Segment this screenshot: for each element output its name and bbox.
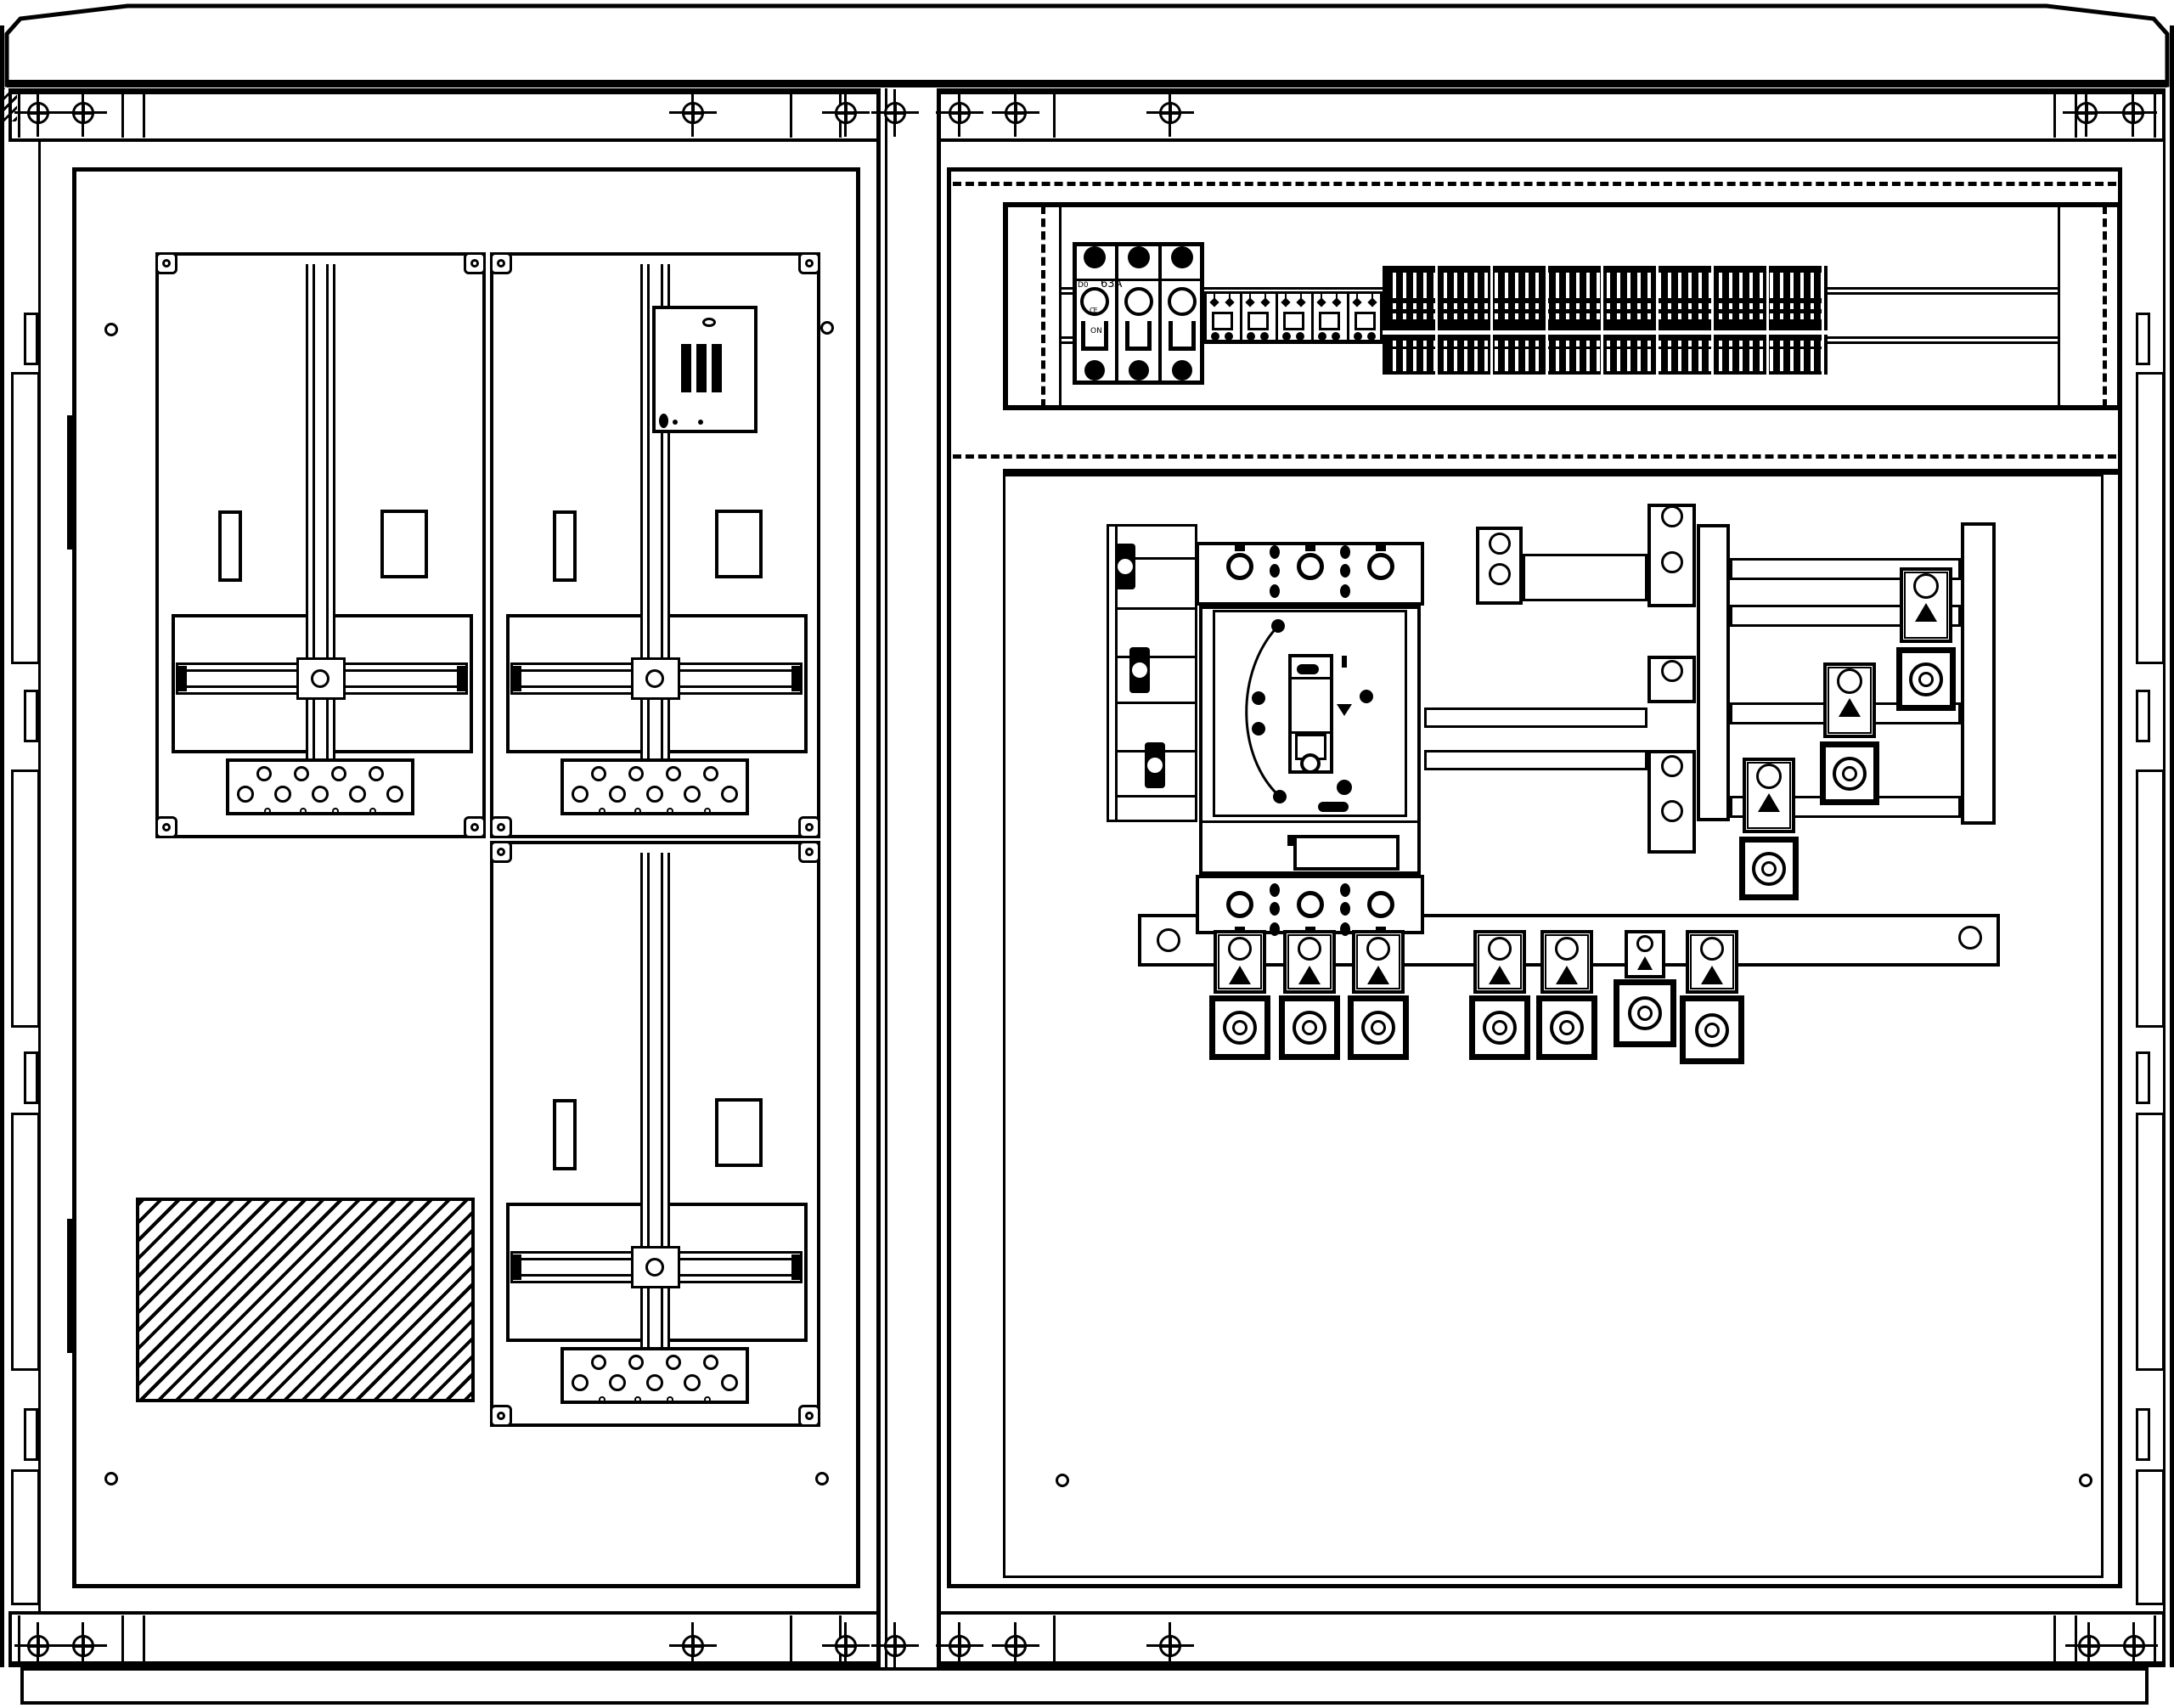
frame-notch-tab — [2136, 1051, 2150, 1104]
mccb-face-line — [1199, 820, 1421, 823]
frame-notch-tab — [24, 1051, 38, 1104]
frame-notch-tab — [24, 1408, 38, 1461]
rail-tick — [2154, 93, 2156, 138]
frame-notch — [11, 1469, 40, 1605]
terminal-hole-small — [667, 1396, 673, 1403]
receiver-dot — [673, 420, 678, 425]
din-unit-divider — [1240, 294, 1242, 340]
busbar-vertical — [1961, 522, 1996, 825]
din-terminal-window — [1355, 312, 1376, 330]
cable-lug-pad-ring-inner — [1371, 1020, 1386, 1035]
mcb-terminal-screw — [1172, 360, 1192, 380]
terminal-hole-small — [704, 1396, 711, 1403]
frame-notch — [2136, 1469, 2165, 1605]
mcb-terminal-screw — [1084, 360, 1105, 380]
plinth — [20, 1667, 2149, 1705]
terminal-hole — [703, 1355, 718, 1370]
mccb-mark — [1360, 690, 1373, 703]
screw-slot — [37, 102, 40, 124]
terminal-hole-small — [667, 808, 673, 815]
rail-tick — [790, 1615, 792, 1663]
rail-tick — [18, 93, 20, 138]
terminal-hole — [721, 1374, 738, 1391]
din-unit-divider — [1311, 294, 1314, 340]
rail-tick — [2154, 1615, 2156, 1663]
screw-slot — [82, 102, 85, 124]
busbar-bolt-hole — [1661, 505, 1683, 527]
screw-slot — [2132, 102, 2135, 124]
bracket-end-cap — [791, 666, 800, 691]
cable-lug-pad-ring-inner — [1704, 1023, 1720, 1038]
rail-tick — [143, 1615, 145, 1663]
mccb-line — [1290, 677, 1332, 679]
receiver-led — [702, 318, 716, 327]
dashed-line-horizontal — [953, 182, 2116, 186]
panel-corner-screw-icon — [805, 848, 814, 856]
rail-tick — [2053, 1615, 2056, 1663]
mcb-module-divider — [1115, 245, 1118, 381]
screw-slot — [844, 1635, 848, 1657]
receiver-vent-bar — [696, 344, 707, 392]
mcb-terminal-screw — [1171, 246, 1193, 268]
mccb-screw-oval — [1270, 922, 1280, 936]
rail-tick — [2053, 93, 2056, 138]
bracket-rung — [1118, 795, 1195, 798]
din-foot — [1211, 332, 1219, 341]
terminal-hole-small — [704, 808, 711, 815]
bar-hole — [1958, 926, 1982, 950]
mcb-window — [1168, 287, 1197, 316]
screw-slot — [844, 102, 848, 124]
cable-lug-clamp-wedge-icon — [1298, 966, 1321, 984]
cable-lug-pad-ring-inner — [1559, 1020, 1574, 1035]
cable-lug-pad-ring-inner — [1232, 1020, 1248, 1035]
din-foot — [1354, 332, 1362, 341]
cable-lug-clamp-wedge-icon — [1229, 966, 1251, 984]
cable-lug-clamp-hole — [1488, 937, 1512, 961]
cable-lug-clamp-hole — [1837, 668, 1862, 694]
terminal-hole — [237, 786, 254, 803]
frame-notch-tab — [24, 313, 38, 365]
screw-slot — [691, 1635, 695, 1657]
cabinet-right-edge — [2170, 25, 2174, 1667]
bracket-end-cap — [457, 666, 465, 691]
bracket-end-cap — [791, 1254, 800, 1280]
dashed-line-vertical — [2103, 206, 2107, 408]
panel-corner-screw-icon — [162, 823, 171, 831]
dashed-line-horizontal — [953, 454, 2116, 459]
terminal-hole-small — [300, 808, 307, 815]
screw-slot — [958, 1635, 961, 1657]
mounting-rail — [8, 88, 2166, 142]
mccb-terminal — [1226, 891, 1253, 918]
screw-slot — [691, 102, 695, 124]
mccb-screw-oval — [1270, 545, 1280, 559]
mccb-slot — [1318, 802, 1349, 812]
busbar-vertical — [1697, 524, 1730, 821]
terminal-hole — [628, 766, 644, 781]
terminal-hole — [684, 1374, 701, 1391]
terminal-hole — [666, 1355, 681, 1370]
terminal-hole-small — [599, 1396, 605, 1403]
terminal-hole-small — [634, 1396, 641, 1403]
mccb-label-tab — [1287, 835, 1293, 846]
din-foot — [1296, 332, 1304, 341]
mounting-hole — [104, 323, 118, 336]
cable-lug-clamp-hole — [1366, 937, 1390, 961]
bracket-clip-hole — [1147, 758, 1163, 773]
terminal-hole-small — [332, 808, 339, 815]
mccb-terminal — [1367, 553, 1394, 580]
din-terminal-window — [1283, 312, 1304, 330]
rail-tick — [121, 1615, 124, 1663]
bracket-center-screw-icon — [311, 669, 329, 688]
mccb-mark — [1337, 780, 1352, 795]
frame-notch — [2136, 1113, 2165, 1371]
busbar-bolt-hole — [1661, 800, 1683, 822]
panel-corner-screw-icon — [497, 848, 505, 856]
cable-lug-clamp-hole — [1636, 935, 1653, 952]
seal-slot — [218, 510, 242, 582]
terminal-hole — [274, 786, 291, 803]
terminal-hole — [349, 786, 366, 803]
panel-corner-screw-icon — [470, 259, 479, 268]
mccb-screw-oval — [1340, 545, 1350, 559]
mcb-ce-mark: CE — [1090, 307, 1097, 314]
mccb-screw-oval — [1270, 584, 1280, 598]
terminal-hole — [609, 786, 626, 803]
mccb-screw-oval — [1270, 883, 1280, 897]
board-margin-line — [1059, 207, 1062, 405]
terminal-hole-small — [634, 808, 641, 815]
terminal-hole-small — [369, 808, 376, 815]
cable-lug-pad-ring-inner — [1842, 766, 1857, 781]
cable-lug-clamp-wedge-icon — [1489, 966, 1511, 984]
terminal-hole — [591, 1355, 606, 1370]
frame-notch-tab — [2136, 313, 2150, 365]
mccb-terminal — [1226, 553, 1253, 580]
screw-slot — [37, 1635, 40, 1657]
cable-lug-clamp-wedge-icon — [1701, 966, 1723, 984]
board-margin-line — [2058, 207, 2060, 405]
mccb-screw-oval — [1270, 902, 1280, 916]
cable-lug-clamp-wedge-icon — [1367, 966, 1389, 984]
panel-corner-screw-icon — [162, 259, 171, 268]
cabinet-drawing: D0 63A CE ON — [0, 0, 2174, 1708]
din-terminal-window — [1248, 312, 1269, 330]
mccb-terminal — [1297, 891, 1324, 918]
mccb-handle-top — [1297, 664, 1319, 674]
mcb-line — [1076, 279, 1201, 281]
din-foot — [1367, 332, 1376, 341]
bracket-clip-hole — [1118, 559, 1133, 574]
panel-corner-screw-icon — [497, 259, 505, 268]
receiver-dot — [698, 420, 703, 425]
seal-slot-wide — [380, 510, 428, 578]
frame-notch — [2136, 769, 2165, 1028]
terminal-hole-small — [264, 808, 271, 815]
bracket-center-screw-icon — [645, 1258, 664, 1277]
cable-lug-clamp-hole — [1228, 937, 1252, 961]
seal-slot-wide — [715, 510, 763, 578]
rail-tick — [790, 93, 792, 138]
cable-lug-pad-ring-inner — [1761, 861, 1777, 877]
screw-slot — [2132, 1635, 2136, 1657]
panel-corner-screw-icon — [805, 1412, 814, 1420]
bracket-center-screw-icon — [645, 669, 664, 688]
cable-lug-clamp-hole — [1298, 937, 1321, 961]
mccb-screw-oval — [1340, 902, 1350, 916]
mccb-screw-oval — [1340, 564, 1350, 578]
terminal-hole — [703, 766, 718, 781]
cable-lug-clamp-hole — [1555, 937, 1579, 961]
din-foot — [1225, 332, 1233, 341]
rail-tick — [18, 1615, 20, 1663]
mccb-mark — [1252, 691, 1265, 705]
mccb-label-window — [1293, 835, 1400, 871]
terminal-hole — [666, 766, 681, 781]
mccb-mark — [1252, 722, 1265, 736]
mcb-notch — [1125, 321, 1152, 351]
bracket-rung — [1118, 702, 1195, 704]
cable-lug-pad-ring-inner — [1637, 1006, 1653, 1021]
mccb-screw-oval — [1340, 883, 1350, 897]
screw-slot — [82, 1635, 85, 1657]
cable-lug-pad-ring-inner — [1918, 672, 1934, 687]
screw-slot — [958, 102, 961, 124]
cable-lug-clamp-wedge-icon — [1915, 603, 1937, 622]
drawing-layers — [0, 0, 2174, 1708]
frame-notch-tab — [24, 690, 38, 742]
terminal-hole — [572, 1374, 589, 1391]
mcb-notch — [1169, 321, 1196, 351]
bracket-rung — [1118, 607, 1195, 610]
rail-tick — [143, 93, 145, 138]
mcb-terminal-screw — [1129, 360, 1149, 380]
array-separators — [1383, 266, 1828, 375]
screw-slot — [1169, 1635, 1172, 1657]
rail-tick — [1053, 93, 1056, 138]
din-foot — [1332, 332, 1340, 341]
frame-notch-tab — [2136, 1408, 2150, 1461]
busbar-bolt-hole — [1661, 551, 1683, 573]
terminal-hole — [646, 786, 663, 803]
terminal-hole — [572, 786, 589, 803]
cable-lug-clamp-hole — [1756, 764, 1782, 789]
frame-notch — [11, 769, 40, 1028]
cable-lug-clamp-wedge-icon — [1556, 966, 1578, 984]
mounting-hole — [104, 1472, 118, 1485]
bar-hole — [1157, 928, 1180, 952]
screw-slot — [1169, 102, 1172, 124]
terminal-hole-small — [599, 808, 605, 815]
din-terminal-window — [1212, 312, 1233, 330]
mccb-terminal-nub — [1235, 544, 1245, 551]
mccb-handle-pivot — [1300, 753, 1321, 774]
cable-lug-pad-ring-inner — [1302, 1020, 1317, 1035]
rail-tick — [1053, 1615, 1056, 1663]
terminal-hole — [369, 766, 384, 781]
din-unit-divider — [1347, 294, 1349, 340]
seal-slot — [553, 1099, 577, 1170]
terminal-hole — [591, 766, 606, 781]
cable-lug-clamp-wedge-icon — [1839, 698, 1861, 717]
seal-slot — [553, 510, 577, 582]
terminal-hole — [721, 786, 738, 803]
mullion-inner-line — [885, 88, 887, 1667]
busbar-bolt-hole — [1489, 563, 1511, 585]
busbar-strap — [1424, 750, 1647, 770]
bracket-clip-hole — [1132, 662, 1147, 678]
mcb-type-label: D0 — [1078, 282, 1089, 290]
frame-notch — [11, 372, 40, 664]
din-foot — [1260, 332, 1269, 341]
mccb-screw-oval — [1340, 922, 1350, 936]
mounting-rail — [8, 1611, 2166, 1667]
mounting-hole — [820, 321, 834, 335]
frame-notch-tab — [2136, 690, 2150, 742]
mcb-terminal-screw — [1084, 246, 1106, 268]
receiver-vent-bar — [712, 344, 722, 392]
hatch-corner — [2, 88, 17, 121]
terminal-hole — [609, 1374, 626, 1391]
rail-tick — [2075, 1615, 2077, 1663]
terminal-hole — [386, 786, 403, 803]
cable-lug-pad-ring-inner — [1492, 1020, 1507, 1035]
mcb-notch — [1081, 321, 1108, 351]
mcb-on-label: ON — [1090, 328, 1102, 335]
terminal-hole — [256, 766, 272, 781]
mccb-terminal-nub — [1305, 544, 1315, 551]
panel-corner-screw-icon — [470, 823, 479, 831]
mcb-terminal-screw — [1128, 246, 1150, 268]
panel-corner-screw-icon — [497, 1412, 505, 1420]
screw-slot — [1014, 1635, 1017, 1657]
din-foot — [1282, 332, 1291, 341]
frame-notch — [2136, 372, 2165, 664]
screw-slot — [2087, 1635, 2091, 1657]
mccb-arrow-icon — [1337, 704, 1352, 716]
receiver-vent-bar — [681, 344, 691, 392]
terminal-hole — [684, 786, 701, 803]
din-foot — [1247, 332, 1255, 341]
din-unit-divider — [1276, 294, 1278, 340]
busbar-bolt-hole — [1661, 755, 1683, 777]
mccb-terminal-nub — [1376, 544, 1386, 551]
cable-lug-wedge-icon — [1637, 956, 1653, 970]
bracket-end-cap — [513, 666, 521, 691]
dashed-line-vertical — [1041, 206, 1045, 408]
screw-slot — [2085, 102, 2088, 124]
mccb-screw-oval — [1270, 564, 1280, 578]
terminal-hole — [646, 1374, 663, 1391]
cable-lug-clamp-hole — [1700, 937, 1724, 961]
mcb-module-divider — [1158, 245, 1162, 381]
rail-tick — [121, 93, 124, 138]
busbar-bolt-hole — [1661, 660, 1683, 682]
busbar-strap — [1523, 554, 1647, 601]
din-foot — [1318, 332, 1326, 341]
terminal-hole — [294, 766, 309, 781]
hatch-area — [136, 1198, 475, 1402]
cabinet-left-edge — [0, 25, 4, 1667]
mccb-screw-oval — [1340, 584, 1350, 598]
busbar-strap — [1424, 707, 1647, 728]
busbar-bolt-hole — [1489, 533, 1511, 555]
mccb-mark-tick — [1342, 656, 1347, 668]
cable-lug-clamp-wedge-icon — [1758, 793, 1780, 812]
frame-notch — [11, 1113, 40, 1371]
seal-slot-wide — [715, 1098, 763, 1167]
din-terminal-window — [1319, 312, 1340, 330]
screw-slot — [1014, 102, 1017, 124]
screw-slot — [893, 102, 897, 124]
mccb-terminal — [1367, 891, 1394, 918]
panel-corner-screw-icon — [805, 259, 814, 268]
panel-corner-screw-icon — [805, 823, 814, 831]
mccb-terminal — [1297, 553, 1324, 580]
panel-corner-screw-icon — [497, 823, 505, 831]
mcb-rating-label: 63A — [1101, 279, 1122, 290]
bracket-end-cap — [178, 666, 187, 691]
terminal-hole — [331, 766, 346, 781]
terminal-hole — [312, 786, 329, 803]
receiver-terminal — [659, 414, 668, 428]
mcb-window — [1124, 287, 1153, 316]
terminal-hole — [628, 1355, 644, 1370]
bracket-end-cap — [513, 1254, 521, 1280]
screw-slot — [893, 1635, 897, 1657]
mounting-hole — [815, 1472, 829, 1485]
cable-lug-clamp-hole — [1913, 573, 1939, 599]
